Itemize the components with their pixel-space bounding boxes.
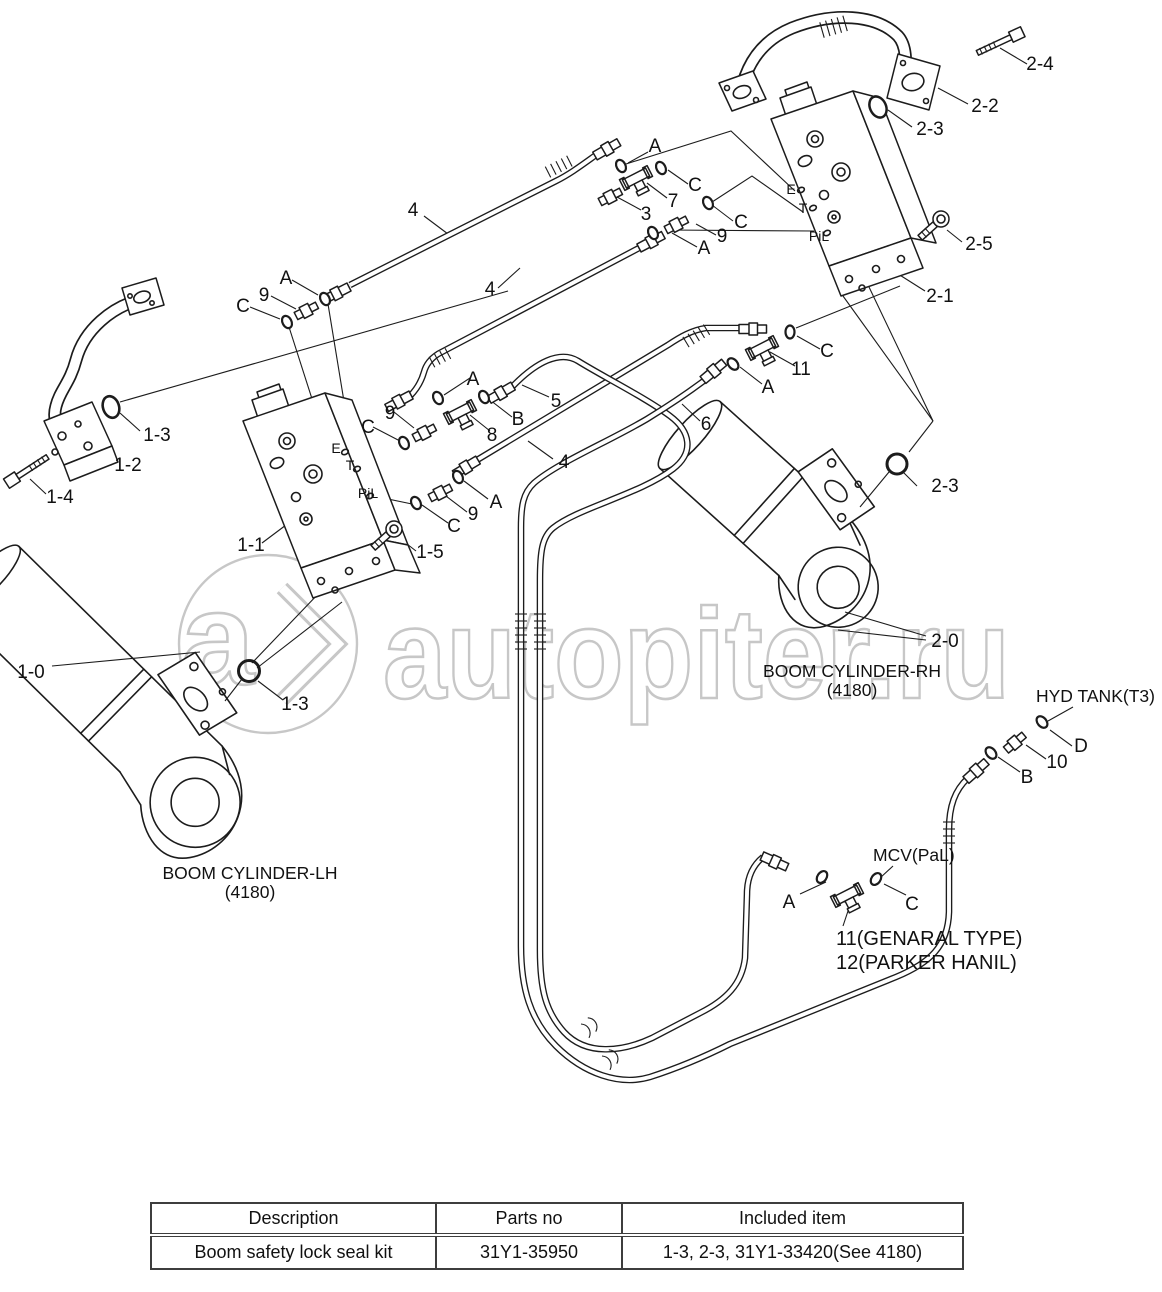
callout-2-2: 2-2 xyxy=(971,96,998,117)
callout-8: 8 xyxy=(487,425,498,446)
callout-4-upper: 4 xyxy=(408,200,419,221)
port-label-PiL-lh: PiL xyxy=(358,485,378,501)
parts-table: Description Parts no Included item Boom … xyxy=(150,1202,962,1270)
caption-boom-cylinder-rh-ref: (4180) xyxy=(827,680,878,700)
port-label-T-rh: T xyxy=(799,200,808,216)
cell-description: Boom safety lock seal kit xyxy=(151,1235,436,1269)
port-label-E-lh: E xyxy=(331,440,340,456)
callout-10: 10 xyxy=(1046,752,1067,773)
caption-boom-cylinder-rh: BOOM CYLINDER-RH xyxy=(763,661,941,681)
callout-3: 3 xyxy=(641,204,652,225)
note-general-type: 11(GENARAL TYPE) xyxy=(836,928,1022,950)
callout-9b: 9 xyxy=(259,285,270,306)
valve-block-2-1 xyxy=(771,82,936,296)
cell-parts-no: 31Y1-35950 xyxy=(436,1235,622,1269)
callout-C6: C xyxy=(820,341,834,362)
callout-C5: C xyxy=(447,516,461,537)
callout-C7: C xyxy=(905,894,919,915)
callout-C4: C xyxy=(361,417,375,438)
parts-diagram-page: a autopiter.ru xyxy=(0,0,1162,1292)
callout-6: 6 xyxy=(701,414,712,435)
callout-2-0: 2-0 xyxy=(931,631,958,652)
caption-boom-cylinder-lh: BOOM CYLINDER-LH xyxy=(162,863,337,883)
callout-C3: C xyxy=(236,296,250,317)
callout-A6: A xyxy=(762,377,775,398)
callout-1-1: 1-1 xyxy=(237,535,264,556)
caption-boom-cylinder-lh-ref: (4180) xyxy=(225,882,276,902)
callout-9d: 9 xyxy=(468,504,479,525)
callout-A3: A xyxy=(280,268,293,289)
callout-2-3-cyl: 2-3 xyxy=(931,476,958,497)
pipe-assy-right xyxy=(719,16,940,111)
callout-A5: A xyxy=(490,492,503,513)
callout-B2: B xyxy=(1021,767,1034,788)
callout-D: D xyxy=(1074,736,1088,757)
callout-4-lower: 4 xyxy=(559,452,570,473)
callout-A1: A xyxy=(649,136,662,157)
callout-1-4: 1-4 xyxy=(46,487,74,508)
callout-1-2: 1-2 xyxy=(114,455,141,476)
callout-1-0: 1-0 xyxy=(17,662,44,683)
tee-fittings xyxy=(443,166,868,918)
callout-B1: B xyxy=(512,409,525,430)
caption-hyd-tank: HYD TANK(T3) xyxy=(1036,686,1155,706)
cell-included-item: 1-3, 2-3, 31Y1-33420(See 4180) xyxy=(622,1235,963,1269)
callout-A2: A xyxy=(698,238,711,259)
port-label-E-rh: E xyxy=(786,181,795,197)
callout-9c: 9 xyxy=(385,403,396,424)
callout-2-1: 2-1 xyxy=(926,286,953,307)
parts-table-header-row: Description Parts no Included item xyxy=(151,1203,963,1235)
callout-1-3-top: 1-3 xyxy=(143,425,170,446)
callout-5: 5 xyxy=(551,391,562,412)
callout-1-5: 1-5 xyxy=(416,542,443,563)
flange-2-2 xyxy=(887,54,940,110)
watermark-text: autopiter.ru xyxy=(383,583,1010,726)
callout-1-3-cyl: 1-3 xyxy=(281,694,308,715)
seal-ring-2-3 xyxy=(887,454,907,474)
hydraulic-piping-diagram: a autopiter.ru xyxy=(0,0,1162,1292)
callout-9a: 9 xyxy=(717,226,728,247)
port-label-PiL-rh: PiL xyxy=(809,228,829,244)
callout-A4: A xyxy=(467,369,480,390)
callout-2-5: 2-5 xyxy=(965,234,992,255)
callout-C2: C xyxy=(734,212,748,233)
col-description: Description xyxy=(151,1203,436,1235)
port-label-T-lh: T xyxy=(346,457,355,473)
col-parts-no: Parts no xyxy=(436,1203,622,1235)
callout-C1: C xyxy=(688,175,702,196)
callout-A7: A xyxy=(783,892,796,913)
caption-mcv: MCV(PaL) xyxy=(873,845,955,865)
callout-7: 7 xyxy=(668,191,679,212)
parts-table-row: Boom safety lock seal kit 31Y1-35950 1-3… xyxy=(151,1235,963,1269)
callout-2-4: 2-4 xyxy=(1026,54,1054,75)
col-included-item: Included item xyxy=(622,1203,963,1235)
pipe-assy-left xyxy=(44,278,164,481)
callout-2-3-top: 2-3 xyxy=(916,119,943,140)
callout-4-mid: 4 xyxy=(485,279,496,300)
note-parker-hanil: 12(PARKER HANIL) xyxy=(836,952,1017,974)
boom-cylinder-lh xyxy=(0,503,303,877)
callout-11: 11 xyxy=(791,359,811,380)
